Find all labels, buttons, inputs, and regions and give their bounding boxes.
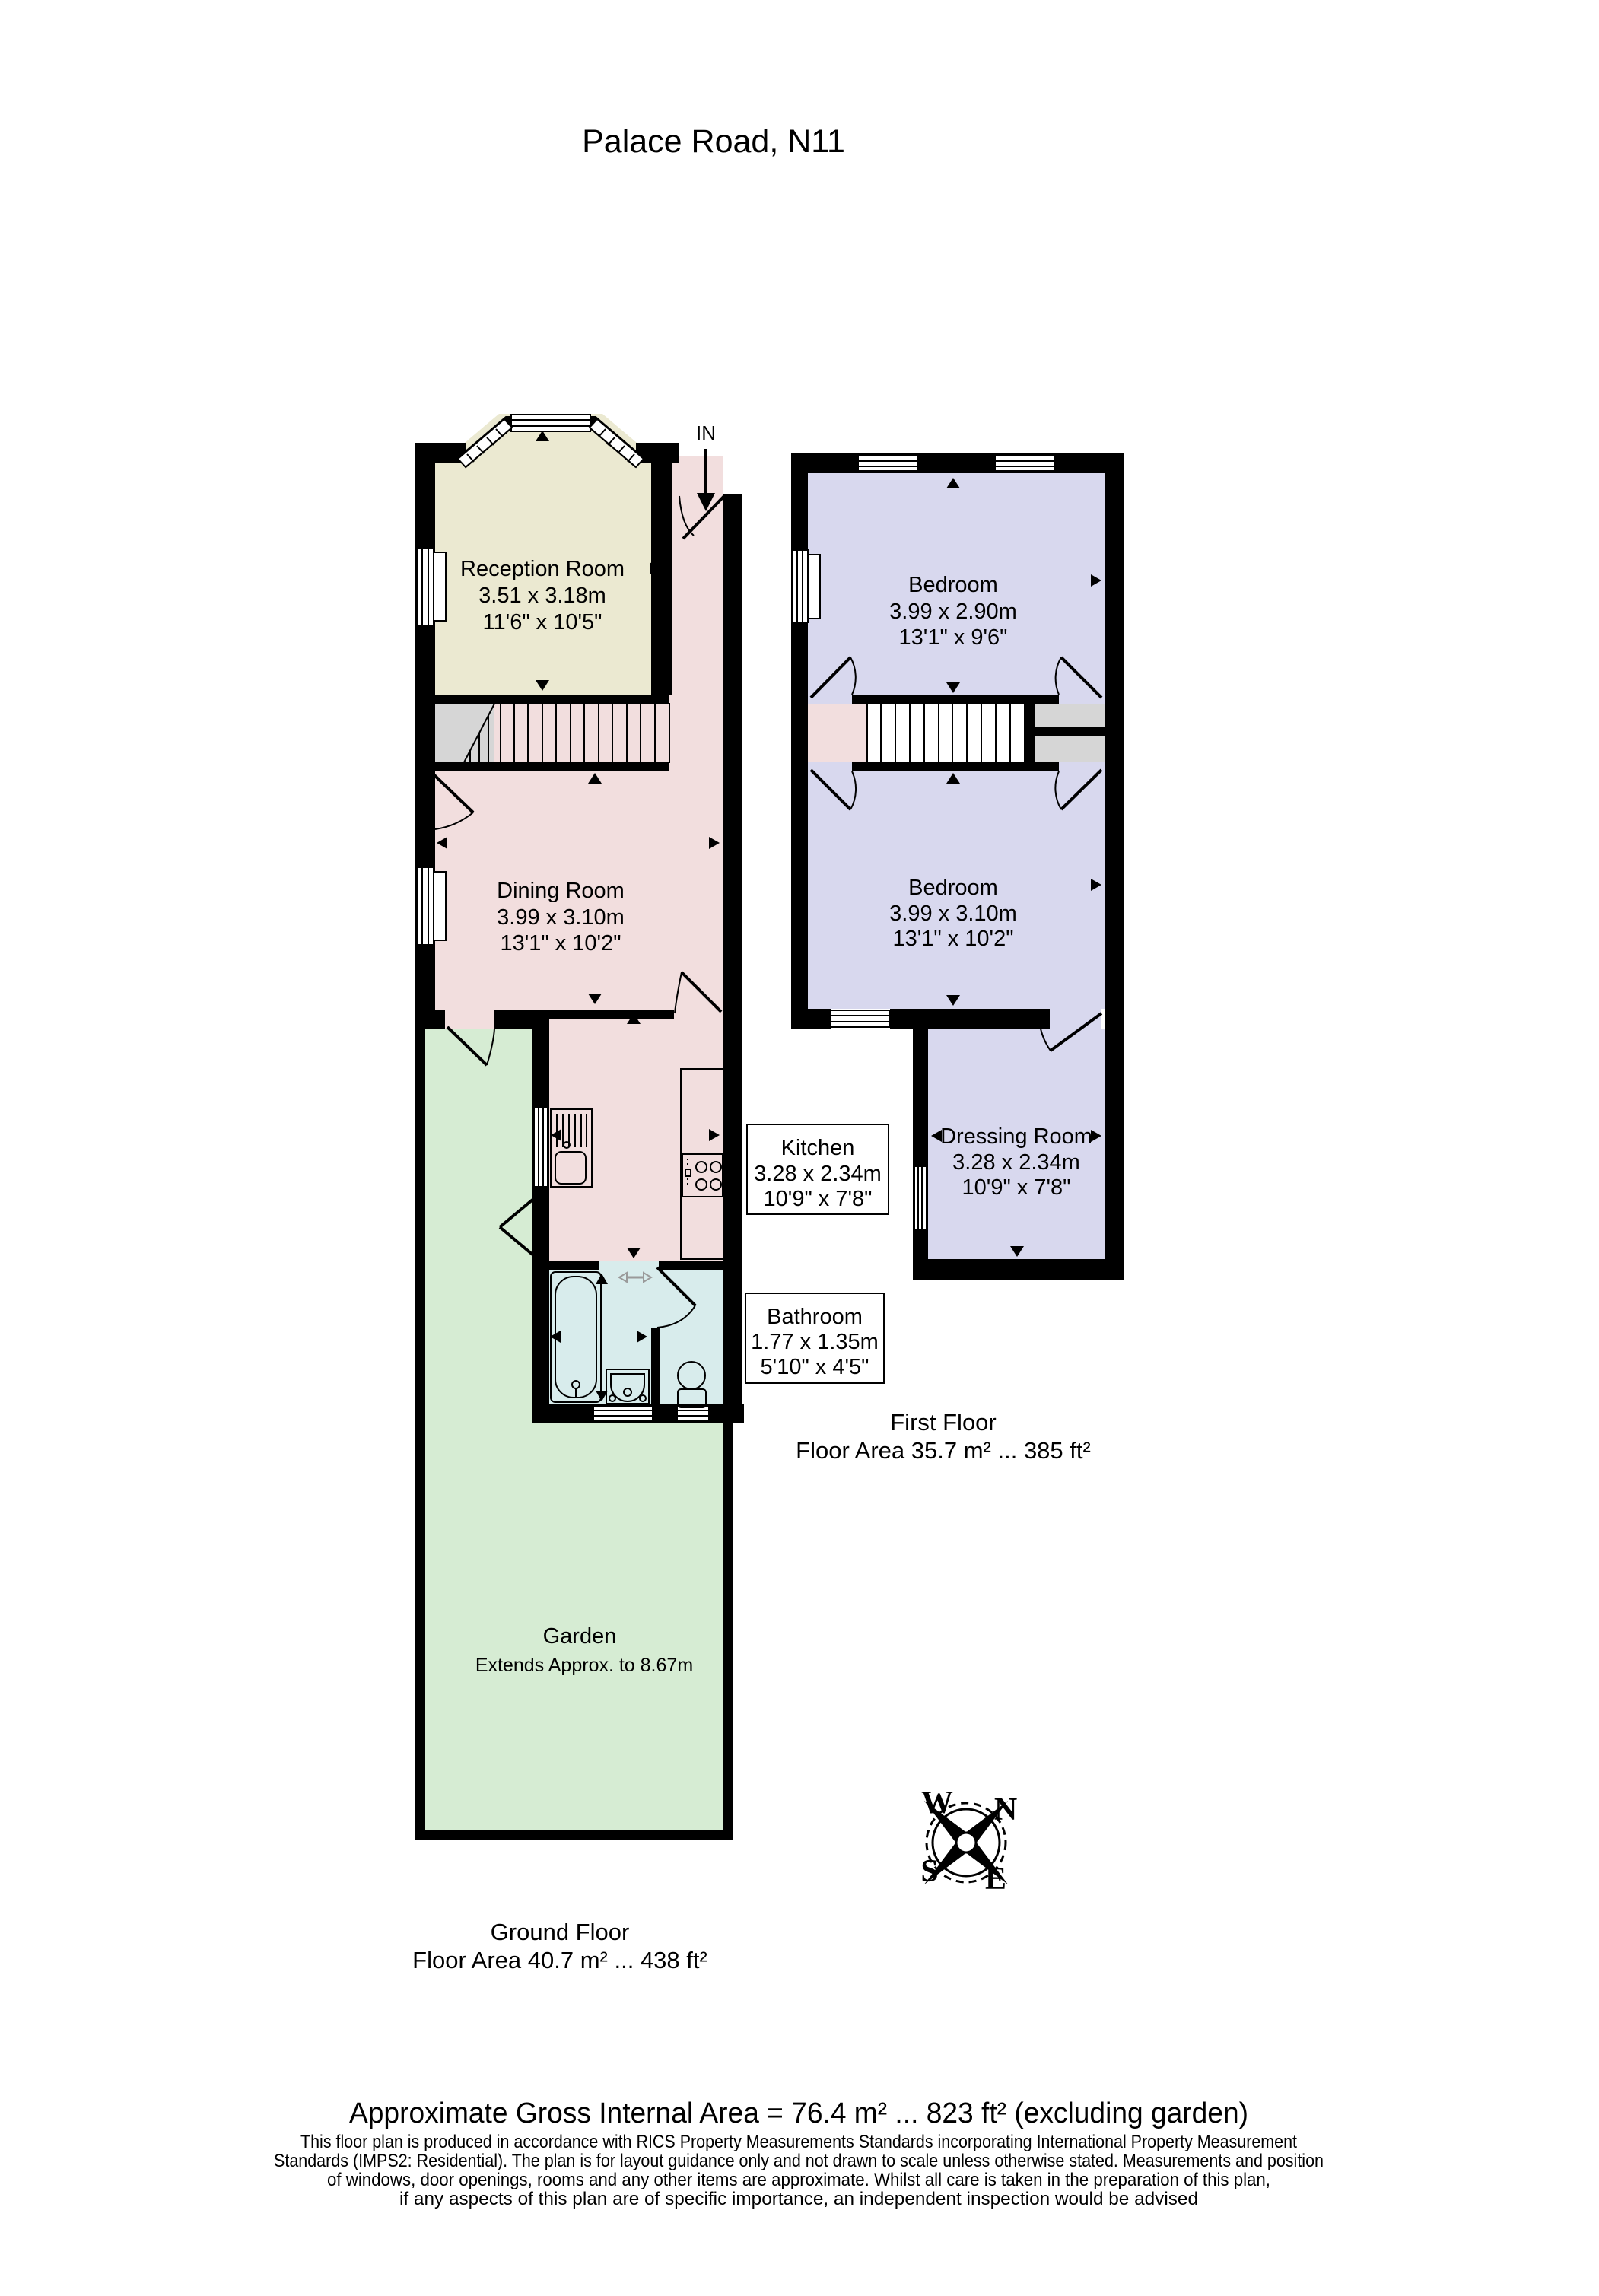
dressing-imperial: 10'9" x 7'8" (962, 1175, 1071, 1200)
page-title: Palace Road, N11 (582, 123, 845, 160)
bedroom-back-door-opening-right (1059, 762, 1105, 771)
kitchen-door-opening (674, 1010, 723, 1019)
reception-window (417, 548, 434, 625)
hallway-floor (666, 456, 723, 771)
first-floor-label: First Floor (890, 1409, 997, 1436)
garden-door-opening (445, 1010, 494, 1029)
bedroom-front-window-right (995, 456, 1054, 471)
dining-metric: 3.99 x 3.10m (497, 905, 625, 930)
garden-note: Extends Approx. to 8.67m (475, 1655, 693, 1676)
bedroom-back-name: Bedroom (908, 876, 998, 900)
bathroom-window-left (593, 1406, 653, 1421)
first-floor-stairs (867, 704, 1025, 762)
bedroom-front-side-window (793, 550, 808, 622)
bathroom-floor (549, 1270, 723, 1404)
bedroom-back-metric: 3.99 x 3.10m (889, 902, 1017, 926)
kitchen-metric: 3.28 x 2.34m (754, 1162, 882, 1186)
compass-west: W (921, 1786, 953, 1821)
bedroom-back-imperial: 13'1" x 10'2" (892, 927, 1013, 951)
ground-floor-area: Floor Area 40.7 m² ... 438 ft² (412, 1947, 707, 1973)
ground-floor-label: Ground Floor (491, 1919, 630, 1945)
kitchen-imperial: 10'9" x 7'8" (764, 1187, 873, 1211)
disclaimer-line-3: of windows, door openings, rooms and any… (327, 2170, 1270, 2190)
reception-name: Reception Room (460, 557, 625, 581)
bathroom-name: Bathroom (767, 1305, 863, 1329)
bedroom-front-metric: 3.99 x 2.90m (889, 599, 1017, 624)
dining-name: Dining Room (497, 879, 625, 903)
bedroom-front-imperial: 13'1" x 9'6" (899, 625, 1008, 650)
bedroom-front-window-left (858, 456, 917, 471)
bedroom-back-window (831, 1010, 890, 1027)
kitchen-window (534, 1107, 548, 1187)
dressing-name: Dressing Room (940, 1124, 1092, 1149)
landing-floor (808, 704, 867, 762)
bedroom-front-name: Bedroom (908, 573, 998, 597)
footer: Approximate Gross Internal Area = 76.4 m… (274, 2097, 1324, 2209)
compass-north: N (994, 1792, 1017, 1827)
dining-imperial: 13'1" x 10'2" (500, 931, 621, 956)
garden-name: Garden (543, 1624, 617, 1649)
disclaimer-line-1: This floor plan is produced in accordanc… (300, 2132, 1297, 2152)
cupboard-top (1035, 704, 1105, 727)
bay-top-window (511, 415, 590, 431)
bedroom-back-door-opening-left (808, 762, 852, 771)
compass-rose: N W S E (882, 1759, 1051, 1927)
bathroom-door-opening (599, 1261, 659, 1270)
entrance-label: IN (696, 421, 716, 444)
dressing-metric: 3.28 x 2.34m (952, 1150, 1080, 1175)
disclaimer-line-2: Standards (IMPS2: Residential). The plan… (274, 2151, 1324, 2171)
gross-internal-area: Approximate Gross Internal Area = 76.4 m… (349, 2097, 1248, 2129)
first-floor-area: Floor Area 35.7 m² ... 385 ft² (796, 1437, 1091, 1464)
reception-imperial: 11'6" x 10'5" (483, 610, 602, 634)
reception-metric: 3.51 x 3.18m (478, 584, 606, 608)
compass-south: S (920, 1854, 938, 1889)
disclaimer-line-4: if any aspects of this plan are of speci… (399, 2189, 1198, 2209)
compass-east: E (985, 1862, 1006, 1897)
cupboard-bottom (1035, 736, 1105, 762)
bathroom-metric: 1.77 x 1.35m (751, 1330, 879, 1354)
dining-window (417, 867, 434, 945)
floor-plan-canvas: Palace Road, N11 (0, 0, 1599, 2296)
understairs-cupboard (435, 704, 494, 762)
kitchen-name: Kitchen (781, 1136, 855, 1160)
bathroom-imperial: 5'10" x 4'5" (761, 1355, 869, 1379)
dressing-window (914, 1166, 927, 1230)
